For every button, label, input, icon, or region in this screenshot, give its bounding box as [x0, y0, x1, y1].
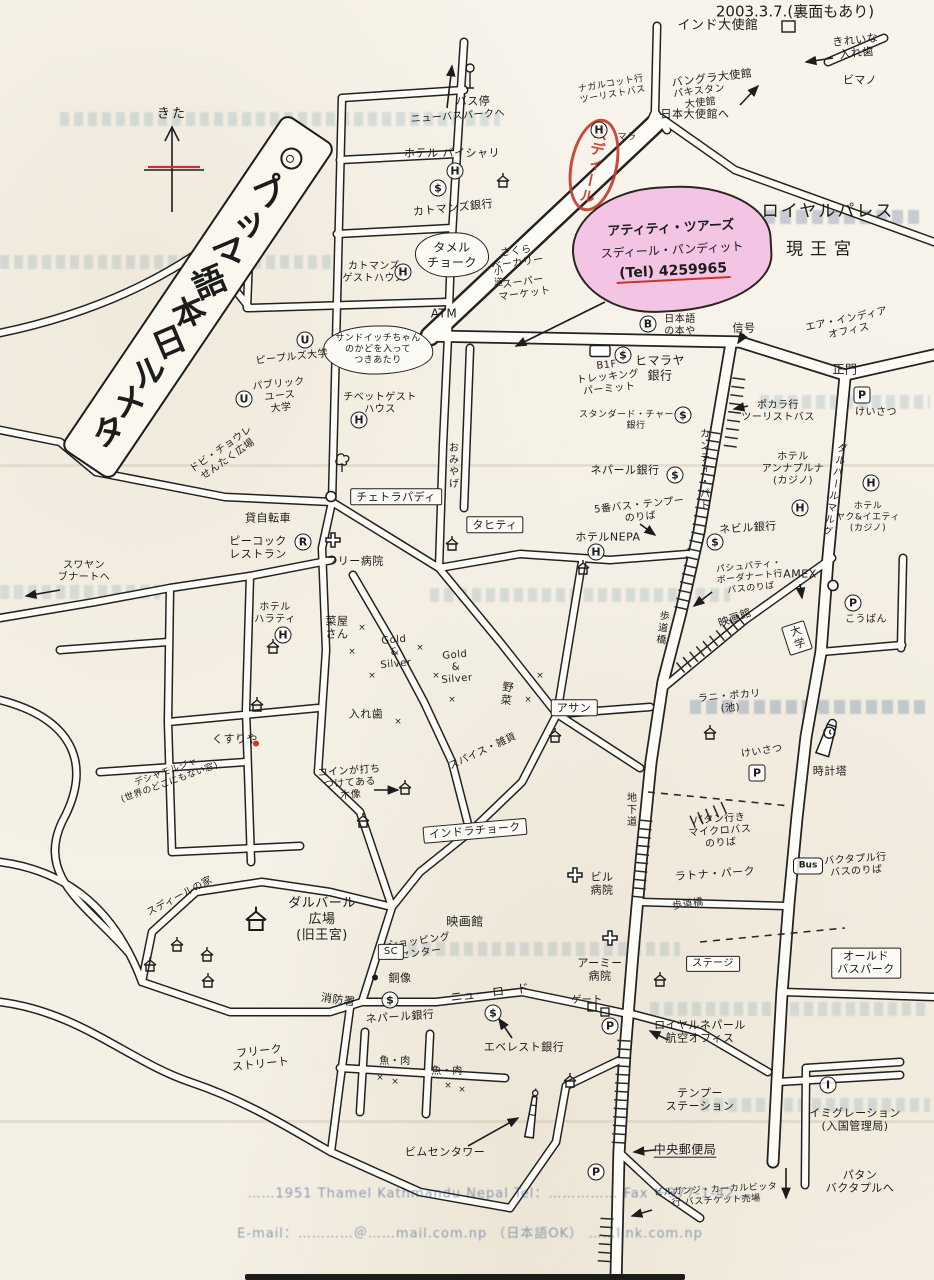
temple-icon: [561, 1073, 579, 1093]
map-label: ロイヤルネパール航空オフィス: [654, 1019, 746, 1046]
map-label: 銅像: [389, 971, 412, 984]
hotel-badge: H: [792, 500, 809, 517]
hotel-badge: H: [863, 475, 880, 492]
map-label: パブリックユース大学: [252, 376, 308, 418]
map-label: スワヤンブナートへ: [58, 560, 111, 584]
map-label: チェトラパディ: [350, 488, 442, 505]
shop-x-mark: ×: [524, 695, 532, 705]
junction-circle-icon: [826, 578, 840, 597]
map-label: 日本大使館へ: [661, 107, 730, 120]
permit-booth-icon: [589, 343, 611, 362]
police-badge: P: [845, 595, 862, 612]
map-label: けいさつ: [855, 407, 897, 419]
map-label: 菜屋さん: [326, 615, 349, 642]
temple-icon: [141, 957, 159, 977]
hospital-cross-icon: [325, 532, 341, 552]
map-label: ホテルNEPA: [575, 530, 640, 543]
tour-office-tel: (Tel) 4259965: [616, 260, 731, 284]
map-label: 貸自転車: [245, 511, 291, 524]
junction-circle-icon: [324, 489, 338, 508]
map-label: バス停: [456, 94, 491, 107]
bank-badge: $: [707, 534, 724, 551]
map-label: パシュパティ・ボーダナート行バスのりば: [715, 558, 785, 598]
map-label: こうばん: [845, 614, 887, 626]
bank-badge: $: [667, 467, 684, 484]
temple-icon: [443, 536, 461, 556]
compass-rose: [144, 127, 204, 212]
bhimsen-tower-icon: [519, 1088, 545, 1148]
temple-icon: [494, 173, 512, 193]
map-label: ピーコックレストラン: [229, 535, 287, 562]
scanned-map-page: タメル日本語マップ きた 2003.3.7.(裏面もあり) スディール アティテ…: [0, 0, 934, 1280]
map-label: テンプーステーション: [666, 1087, 735, 1114]
map-label: アーミー病院: [577, 957, 622, 984]
immigration-badge: I: [820, 1077, 837, 1094]
map-label: ビムセンタワー: [405, 1145, 486, 1158]
tree-icon: [332, 451, 352, 477]
map-label: AMEX: [783, 567, 817, 580]
temple-icon: [396, 780, 414, 800]
shop-x-mark: ×: [416, 643, 424, 653]
map-label: バクタプル行バスのりば: [824, 852, 888, 881]
map-label: マラ: [617, 133, 636, 144]
map-label: 正門: [832, 363, 857, 378]
temple-icon: [199, 973, 217, 993]
bank-badge: $: [430, 180, 447, 197]
map-label: アサン: [551, 699, 598, 716]
temple-icon: [198, 947, 216, 967]
bank-badge: $: [485, 1005, 502, 1022]
map-label: 日本語の本や: [664, 314, 696, 338]
map-label: タメルチョーク: [415, 232, 489, 277]
map-label: 魚・肉: [431, 1066, 463, 1078]
shop-x-mark: ×: [348, 647, 356, 657]
temple-icon: [248, 697, 266, 717]
temple-icon: [651, 972, 669, 992]
bus-stop-sign-icon: [463, 63, 477, 93]
map-label: ステージ: [686, 956, 740, 972]
temple-icon: [546, 728, 564, 748]
royal-palace-label: ロイヤルパレス: [762, 197, 895, 222]
statue-dot-icon: [371, 967, 379, 986]
bank-badge: $: [675, 407, 692, 424]
shop-x-mark: ×: [444, 1081, 452, 1091]
map-label: 中央郵便局: [654, 1143, 717, 1158]
map-label: 時計塔: [813, 764, 848, 777]
temple-icon: [241, 906, 271, 938]
shop-x-mark: ×: [368, 671, 376, 681]
royal-palace-subtitle: 現王宮: [786, 235, 858, 260]
map-label: オールドバスパーク: [831, 948, 901, 979]
map-label: Gold&Silver: [378, 633, 412, 672]
shop-x-mark: ×: [458, 1085, 466, 1095]
map-label: SC: [378, 944, 404, 960]
map-label: コインが打ちつけてある木像: [317, 764, 382, 805]
hospital-cross-icon: [567, 867, 583, 887]
shop-x-mark: ×: [448, 695, 456, 705]
map-label: 映画館: [446, 915, 484, 930]
police-badge: P: [602, 1018, 619, 1035]
map-label: ビマノ: [843, 73, 877, 86]
map-label: パタン行きマイクロバスのりば: [687, 812, 752, 853]
map-label: おみやげ: [447, 442, 458, 490]
shop-x-mark: ×: [358, 623, 366, 633]
map-label: エベレスト銀行: [484, 1040, 565, 1053]
map-label: 魚・肉: [379, 1056, 411, 1068]
footer-bleed-line1: ……1951 Thamel Kathmandu Nepal Tel：…………… …: [247, 1183, 762, 1202]
temple-icon: [574, 560, 592, 580]
map-label: Gold&Silver: [439, 648, 473, 687]
map-label: ポカラ行ツーリストバス: [741, 400, 815, 424]
hotel-badge: H: [588, 544, 605, 561]
map-label: B1Fトレッキングパーミット: [575, 357, 641, 400]
map-label: イミグレーション(入国管理局): [809, 1107, 901, 1134]
map-label: インド大使館: [677, 18, 758, 34]
map-label: パタンバクタプルへ: [826, 1169, 895, 1196]
bus-stop-badge: Bus: [793, 858, 823, 875]
map-label: ホテルアンナプルナ(カジノ): [762, 452, 825, 489]
map-label: きれいな入れ歯: [832, 31, 881, 62]
police-badge: P: [588, 1164, 605, 1181]
temple-icon: [168, 937, 186, 957]
red-dot-icon: [252, 733, 260, 752]
map-label: 入れ歯: [349, 707, 384, 720]
university-badge: U: [297, 332, 314, 349]
tour-office-name: アティティ・ツアーズ: [607, 214, 735, 240]
university-badge: U: [236, 391, 253, 408]
temple-icon: [354, 813, 372, 833]
bank-badge: $: [382, 992, 399, 1009]
map-label: ビル病院: [591, 871, 614, 898]
bank-badge: $: [615, 347, 632, 364]
hospital-cross-icon: [602, 930, 618, 950]
temple-icon: [264, 639, 282, 659]
scan-edge-bar: [245, 1274, 685, 1280]
tour-office-person: スディール・パンディット: [600, 237, 744, 261]
hotel-badge: H: [395, 264, 412, 281]
map-label: 地下道: [625, 792, 636, 828]
footer-bleed-line2: E-mail：…………＠……mail.com.np （日本語OK） ……link…: [237, 1223, 703, 1242]
map-label: 野菜: [498, 680, 514, 707]
map-label: タヒティ: [466, 516, 523, 533]
map-label: ネパール銀行: [591, 463, 660, 476]
map-label: カンティ・パト: [698, 428, 709, 512]
map-label: サンドイッチちゃんのかどを入ってつきあたり: [323, 326, 433, 375]
restaurant-badge: R: [295, 534, 312, 551]
shop-x-mark: ×: [394, 717, 402, 727]
hotel-badge: H: [447, 163, 464, 180]
map-label: ヒマラヤ銀行: [635, 353, 685, 382]
shop-x-mark: ×: [391, 1077, 399, 1087]
map-label: ダルバール広場(旧王宮): [288, 896, 356, 944]
compass-north-label: きた: [157, 103, 187, 122]
shop-x-mark: ×: [376, 1073, 384, 1083]
hotel-badge: H: [591, 122, 608, 139]
clock-tower-icon: [812, 718, 842, 766]
map-label: ATM: [431, 307, 457, 322]
hotel-badge: H: [351, 412, 368, 429]
map-label: ゲート: [571, 995, 603, 1007]
map-label: ホテルヤク&イエティ(カジノ): [836, 502, 900, 535]
police-badge: P: [749, 765, 766, 782]
bookstore-badge: B: [640, 316, 657, 333]
map-label: フリー病院: [326, 554, 384, 567]
map-label: 信号: [733, 321, 756, 334]
map-label: ホテルハラティ: [254, 602, 295, 626]
temple-icon: [701, 725, 719, 745]
shop-x-mark: ×: [536, 671, 544, 681]
map-label: ホテル バイシャリ: [404, 146, 500, 159]
shop-x-mark: ×: [432, 671, 440, 681]
police-badge: P: [854, 387, 871, 404]
